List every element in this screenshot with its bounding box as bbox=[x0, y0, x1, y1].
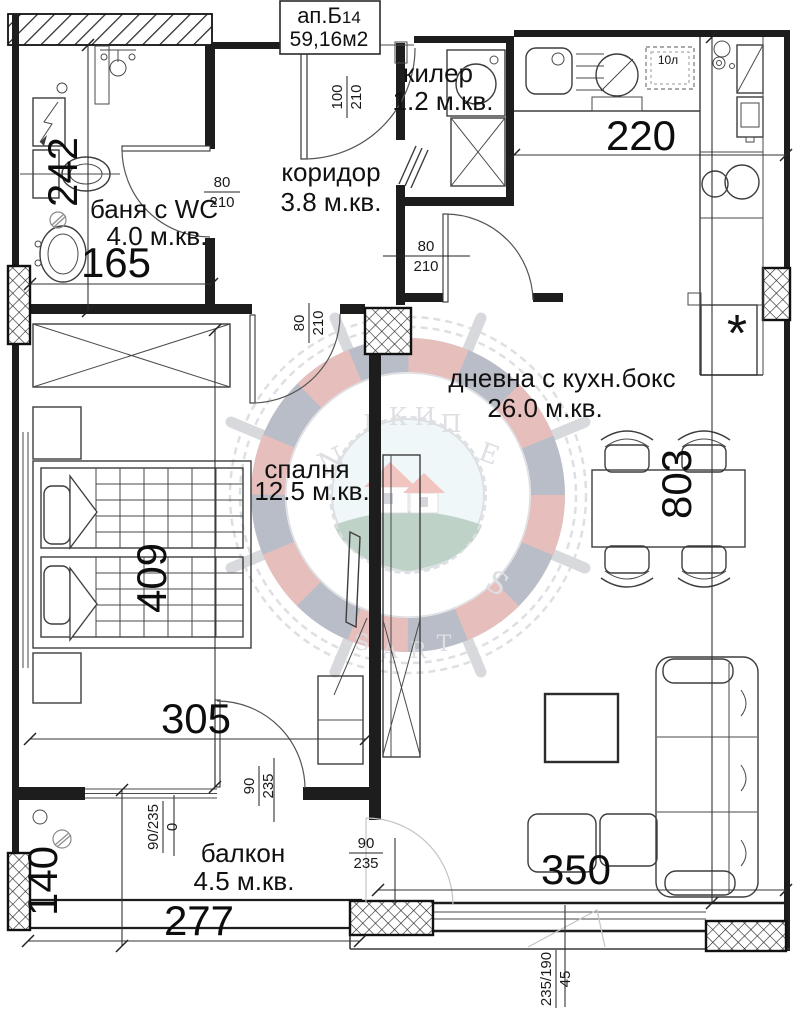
logo-letter: R bbox=[410, 639, 428, 664]
svg-text:100: 100 bbox=[329, 84, 346, 109]
cooktop-icon bbox=[576, 54, 642, 111]
floor-drain-icon bbox=[50, 212, 66, 228]
pillow-fold bbox=[70, 568, 97, 640]
room-area-closet: 1.2 м.кв. bbox=[393, 86, 494, 116]
column bbox=[365, 308, 411, 354]
kitchen-sink-icon bbox=[526, 48, 572, 94]
svg-text:45: 45 bbox=[557, 971, 574, 988]
column bbox=[763, 268, 790, 320]
dim-kitchen-wall: 220 bbox=[606, 112, 676, 159]
dim-living-width: 350 bbox=[541, 846, 611, 893]
floor-drain-icon bbox=[53, 830, 71, 848]
dim-bathroom-depth: 242 bbox=[39, 137, 86, 207]
logo-letter: А bbox=[382, 639, 399, 664]
ceiling-lamp-icon bbox=[100, 50, 136, 76]
room-area-balcony: 4.5 м.кв. bbox=[194, 866, 295, 896]
column bbox=[350, 901, 433, 935]
dim-bedroom-width: 305 bbox=[161, 695, 231, 742]
kitchen-counter-right bbox=[688, 37, 763, 375]
svg-text:235/190: 235/190 bbox=[538, 952, 555, 1006]
boiler-label: 10л bbox=[658, 53, 678, 67]
spec-balcony-window: 90/235 0 bbox=[145, 801, 181, 853]
hatched-party-wall bbox=[8, 14, 212, 45]
balcony-fixtures bbox=[23, 432, 71, 848]
spec-living-balcony-door: 90 235 bbox=[349, 835, 383, 872]
chair-icon bbox=[601, 546, 653, 587]
room-label-corridor: коридор bbox=[281, 157, 380, 187]
room-area-corridor: 3.8 м.кв. bbox=[281, 187, 382, 217]
svg-text:80: 80 bbox=[291, 315, 308, 332]
svg-text:90: 90 bbox=[358, 835, 375, 852]
logo-letter: И bbox=[415, 403, 436, 431]
wardrobe-icon bbox=[33, 324, 230, 387]
balcony-window bbox=[85, 789, 217, 798]
svg-text:235: 235 bbox=[353, 855, 378, 872]
room-area-bedroom: 12.5 м.кв. bbox=[254, 476, 369, 506]
pillow bbox=[44, 566, 70, 624]
logo-letter: S bbox=[354, 631, 369, 656]
room-label-closet: килер bbox=[403, 58, 473, 88]
nightstand bbox=[33, 407, 81, 459]
cabinet-icon bbox=[451, 118, 505, 186]
dim-living-depth: 803 bbox=[653, 449, 700, 519]
bedroom-window-lines bbox=[23, 432, 28, 668]
svg-text:80: 80 bbox=[418, 238, 435, 255]
chair-icon bbox=[678, 546, 730, 587]
svg-text:235: 235 bbox=[260, 773, 277, 798]
floor-plan-canvas: Е К И П N Е S А R Т S bbox=[0, 0, 800, 1009]
closet-folding-door bbox=[399, 146, 428, 188]
logo-letter: К bbox=[389, 403, 408, 431]
boiler-icon: 10л bbox=[646, 47, 694, 89]
valve-icon bbox=[57, 83, 67, 93]
logo-letter: Т bbox=[437, 632, 452, 657]
sofa-icon bbox=[656, 657, 758, 897]
column bbox=[8, 266, 30, 344]
faucet-icons bbox=[713, 41, 735, 69]
pillow bbox=[44, 486, 70, 544]
dim-bedroom-depth: 409 bbox=[128, 543, 175, 613]
title-box: ап.Б14 59,16м2 bbox=[280, 1, 380, 54]
dim-bathroom-width: 165 bbox=[81, 239, 151, 286]
svg-text:90: 90 bbox=[241, 778, 258, 795]
svg-text:210: 210 bbox=[209, 194, 234, 211]
drain-icon bbox=[33, 810, 47, 824]
chair-icon bbox=[601, 431, 653, 472]
room-label-living: дневна с кухн.бокс bbox=[448, 363, 675, 393]
spec-bedroom-balcony-door: 90 235 bbox=[241, 766, 277, 806]
svg-text:210: 210 bbox=[310, 310, 327, 335]
logo-letter: П bbox=[441, 410, 462, 438]
spec-bathroom-door: 80 210 bbox=[204, 174, 240, 211]
svg-text:0: 0 bbox=[164, 823, 181, 831]
oven-icon bbox=[737, 97, 763, 142]
svg-text:210: 210 bbox=[348, 84, 365, 109]
svg-text:210: 210 bbox=[413, 258, 438, 275]
dishwasher-icon bbox=[737, 45, 763, 93]
cabinet bbox=[33, 653, 81, 703]
fridge-icon: * bbox=[701, 305, 757, 375]
apartment-area: 59,16м2 bbox=[290, 28, 369, 51]
svg-text:80: 80 bbox=[214, 174, 231, 191]
pillow-fold bbox=[70, 476, 97, 548]
dresser bbox=[318, 676, 363, 764]
washbasin-icon bbox=[35, 226, 86, 282]
room-area-living: 26.0 м.кв. bbox=[487, 393, 602, 423]
column bbox=[706, 921, 786, 951]
spec-entry-door: 100 210 bbox=[329, 76, 365, 118]
dim-balcony-depth: 140 bbox=[19, 846, 66, 916]
room-label-bathroom: баня с WC bbox=[90, 194, 218, 224]
floor-plan: Е К И П N Е S А R Т S bbox=[0, 0, 800, 1009]
spec-living-window: 235/190 45 bbox=[538, 950, 574, 1008]
living-room-door bbox=[443, 214, 533, 302]
coffee-table-icon bbox=[545, 694, 618, 762]
dim-balcony-width: 277 bbox=[164, 897, 234, 944]
spec-bedroom-door: 80 210 bbox=[291, 303, 327, 343]
fridge-star-icon: * bbox=[727, 305, 747, 363]
kitchen-fixtures: 10л * bbox=[514, 37, 763, 375]
room-label-balcony: балкон bbox=[201, 838, 285, 868]
svg-text:90/235: 90/235 bbox=[145, 804, 162, 850]
